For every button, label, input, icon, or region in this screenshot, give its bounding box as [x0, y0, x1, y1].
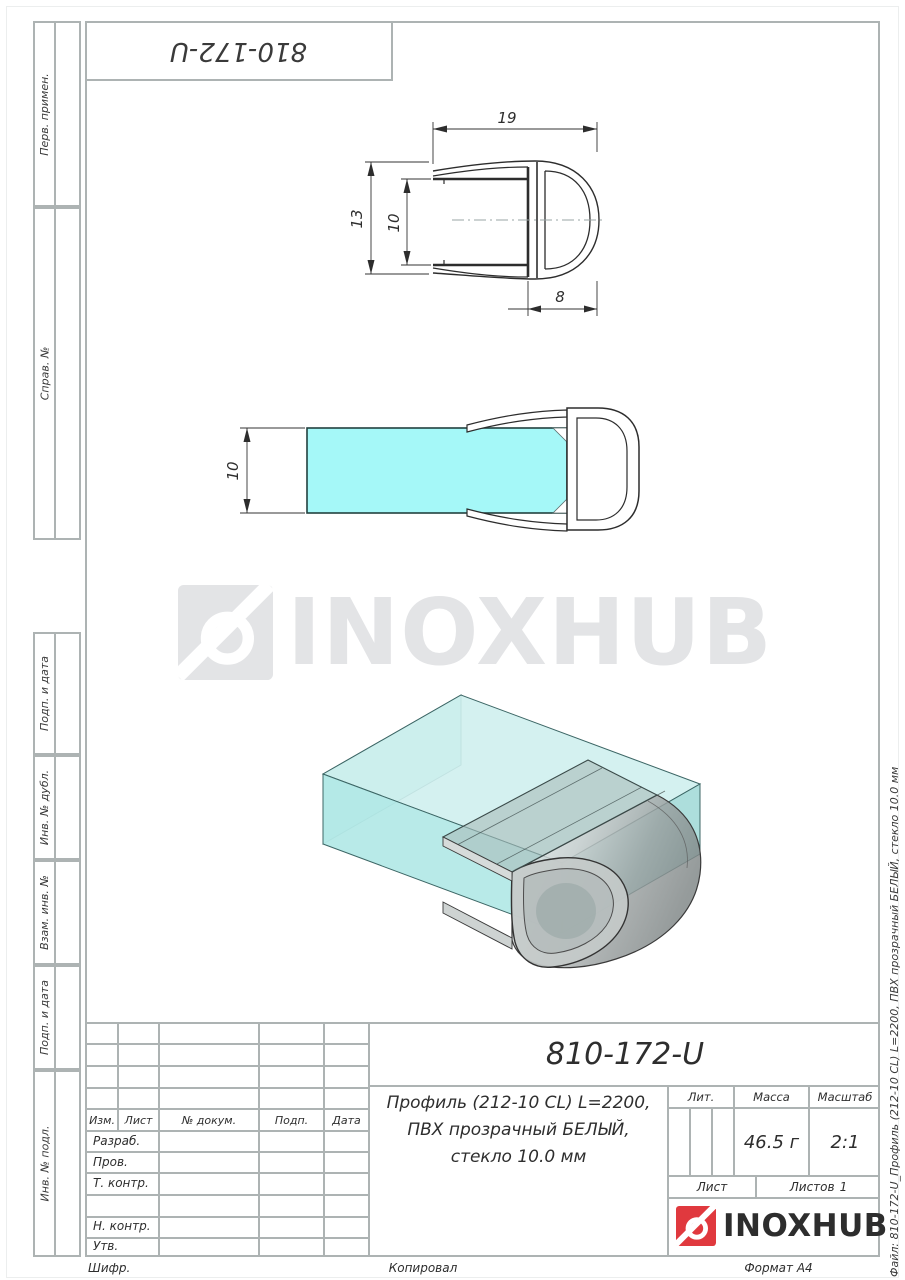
description-line-1: Профиль (212-10 CL) L=2200, — [370, 1090, 667, 1117]
rule — [667, 1197, 880, 1199]
rule — [689, 1107, 691, 1175]
title-description: Профиль (212-10 CL) L=2200, ПВХ прозрачн… — [370, 1090, 667, 1171]
copied-label: Копировал — [368, 1261, 478, 1275]
scale-header: Масштаб — [810, 1087, 880, 1107]
rule — [711, 1107, 713, 1175]
rule — [323, 1022, 325, 1255]
rule — [158, 1022, 160, 1255]
title-doc-number: 810-172-U — [370, 1024, 880, 1085]
rule — [85, 1043, 368, 1045]
rule — [85, 1237, 368, 1239]
rule — [258, 1022, 260, 1255]
margin-label-wrap: Подп. и дата — [35, 634, 54, 753]
rev-col-dokum: № докум. — [160, 1110, 258, 1130]
rule — [85, 1216, 368, 1218]
margin-label-wrap: Инв. № подл. — [35, 1072, 54, 1255]
margin-label-wrap: Инв. № дубл. — [35, 757, 54, 858]
role-utv: Утв. — [93, 1239, 118, 1253]
sheets-value: 1 — [840, 1180, 848, 1194]
rule — [85, 1151, 368, 1153]
rule — [85, 1130, 368, 1132]
brand-logo-icon — [676, 1206, 716, 1246]
rev-col-podp: Подп. — [260, 1110, 323, 1130]
corner-stamp: 810-172-U — [85, 21, 393, 81]
lit-header: Лит. — [669, 1087, 733, 1107]
sheet-label: Лист — [669, 1177, 755, 1197]
description-line-3: стекло 10.0 мм — [370, 1144, 667, 1171]
role-t-kontr: Т. контр. — [93, 1176, 149, 1190]
sheets-cell: Листов 1 — [757, 1177, 880, 1197]
margin-box-sprav-no: Справ. № — [33, 207, 81, 540]
margin-label: Справ. № — [38, 347, 51, 401]
margin-box-podp-data-2: Подп. и дата — [33, 965, 81, 1070]
role-razrab: Разраб. — [93, 1134, 140, 1148]
description-line-2: ПВХ прозрачный БЕЛЫЙ, — [370, 1117, 667, 1144]
rule — [85, 1194, 368, 1196]
margin-box-inv-dubl: Инв. № дубл. — [33, 755, 81, 860]
corner-stamp-number: 810-172-U — [170, 36, 307, 66]
mass-header: Масса — [735, 1087, 808, 1107]
rev-col-data: Дата — [325, 1110, 368, 1130]
margin-label: Взам. инв. № — [38, 875, 51, 950]
scale-value: 2:1 — [810, 1109, 880, 1175]
margin-divider — [54, 209, 56, 538]
margin-label: Подп. и дата — [38, 656, 51, 731]
margin-divider — [54, 23, 56, 205]
margin-label-wrap: Взам. инв. № — [35, 862, 54, 963]
sheets-label: Листов — [790, 1180, 835, 1194]
margin-box-inv-podl: Инв. № подл. — [33, 1070, 81, 1257]
margin-divider — [54, 1072, 56, 1255]
margin-divider — [54, 967, 56, 1068]
drawing-sheet: INOXHUB 810-172-U Перв. примен. Справ. №… — [0, 0, 905, 1280]
margin-label: Подп. и дата — [38, 980, 51, 1055]
rule — [85, 1065, 368, 1067]
margin-label: Инв. № подл. — [38, 1126, 51, 1202]
margin-divider — [54, 634, 56, 753]
margin-label: Инв. № дубл. — [38, 770, 51, 845]
title-block-logo: INOXHUB — [676, 1206, 888, 1246]
margin-label-wrap: Справ. № — [35, 209, 54, 538]
brand-logo-text: INOXHUB — [723, 1211, 888, 1242]
file-note: Файл: 810-172-U_Профиль (212-10 CL) L=22… — [888, 767, 901, 1277]
mass-value: 46.5 г — [735, 1109, 808, 1175]
rule — [85, 1087, 368, 1089]
rule — [667, 1085, 669, 1255]
cipher-label: Шифр. — [88, 1261, 130, 1275]
margin-label-wrap: Подп. и дата — [35, 967, 54, 1068]
rule — [85, 1172, 368, 1174]
margin-box-perv-primen: Перв. примен. — [33, 21, 81, 207]
margin-label: Перв. примен. — [38, 73, 51, 156]
margin-box-podp-data-1: Подп. и дата — [33, 632, 81, 755]
role-n-kontr: Н. контр. — [93, 1219, 151, 1233]
margin-label-wrap: Перв. примен. — [35, 23, 54, 205]
format-label: Формат А4 — [731, 1261, 826, 1275]
margin-box-vzam-inv: Взам. инв. № — [33, 860, 81, 965]
role-prov: Пров. — [93, 1155, 128, 1169]
margin-divider — [54, 862, 56, 963]
rev-col-list: Лист — [119, 1110, 158, 1130]
margin-divider — [54, 757, 56, 858]
rev-col-izm: Изм. — [87, 1110, 117, 1130]
